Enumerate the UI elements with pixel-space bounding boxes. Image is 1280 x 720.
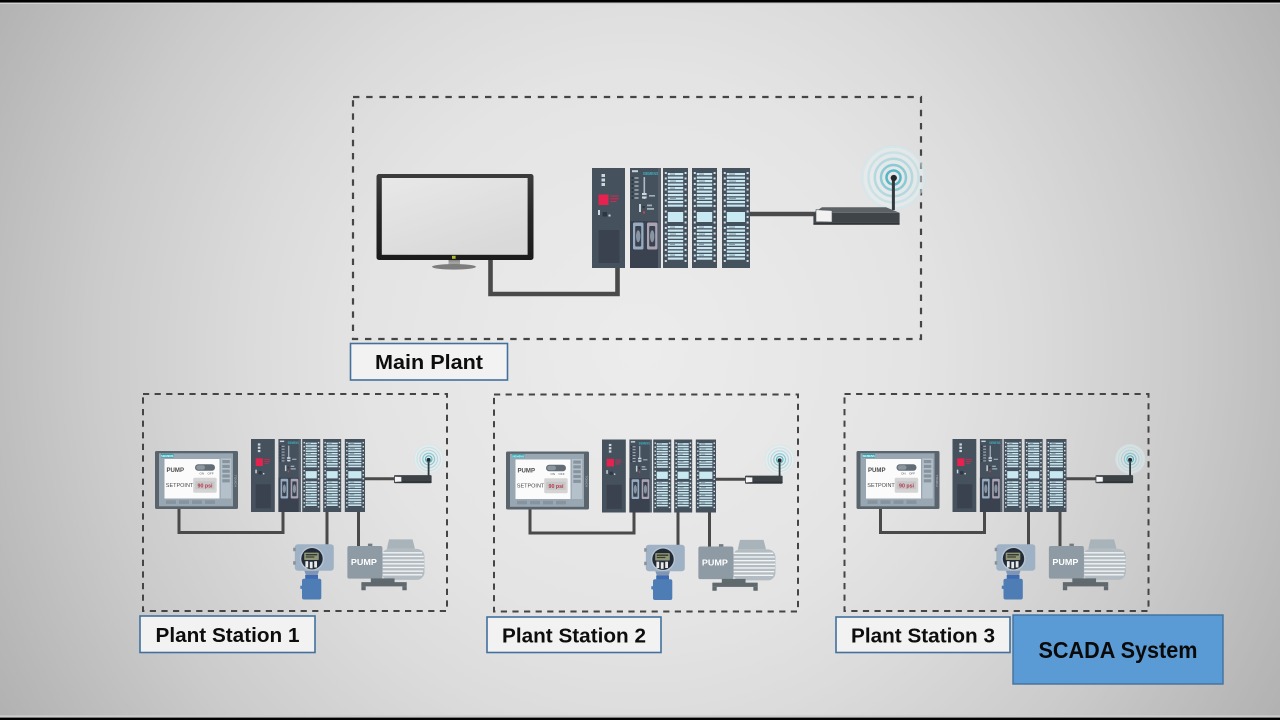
svg-text:Plant Station 2: Plant Station 2 bbox=[502, 625, 646, 648]
svg-text:SCADA System: SCADA System bbox=[1039, 637, 1198, 663]
svg-text:Plant Station 3: Plant Station 3 bbox=[851, 625, 995, 648]
svg-text:Main Plant: Main Plant bbox=[375, 351, 483, 374]
svg-text:Plant Station 1: Plant Station 1 bbox=[156, 624, 300, 647]
